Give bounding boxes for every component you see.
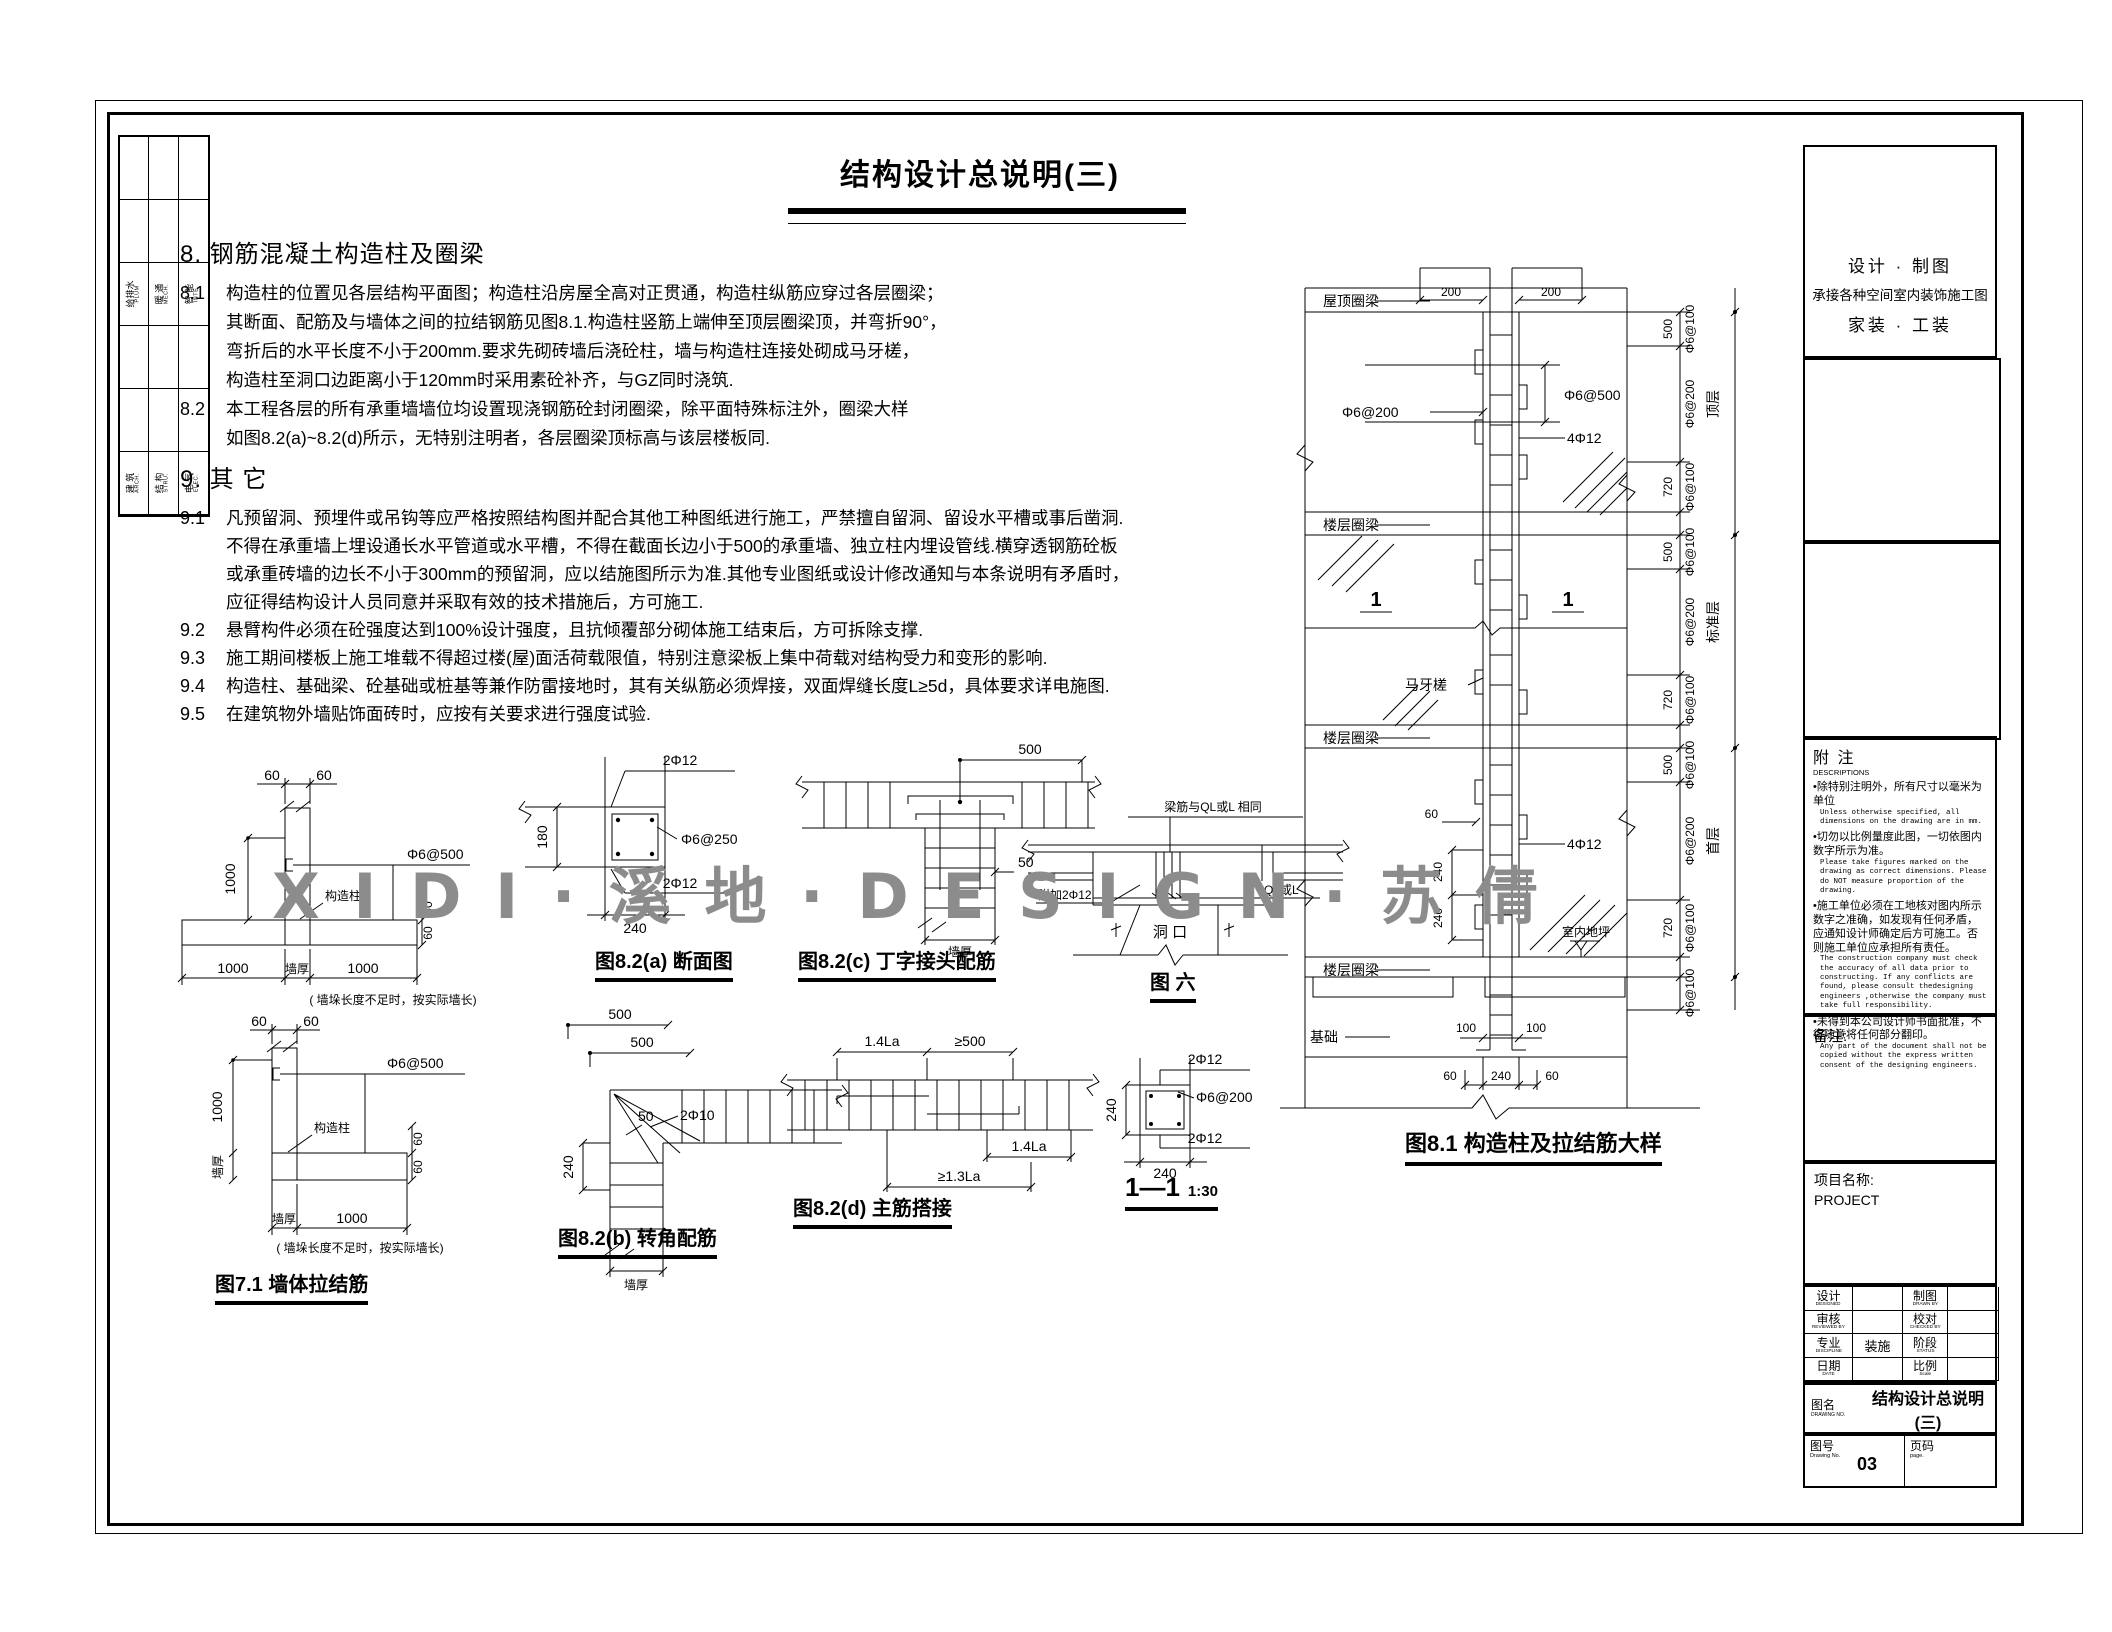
chain-dim: 720 <box>1661 918 1675 938</box>
watermark: X I D I · 溪 地 · D E S I G N · 苏 倩 <box>272 846 1544 936</box>
dim-60: 60 <box>411 1160 425 1174</box>
remark-block: 备注: <box>1803 1015 1997 1162</box>
floor-ring-beam-label: 楼层圈梁 <box>1323 730 1379 746</box>
fig82a-caption: 图8.2(a) 断面图 <box>595 945 733 982</box>
dim-500: ≥500 <box>954 1033 985 1049</box>
fig82d-lap-splice: 1.4La ≥500 1.4La ≥1.3La <box>775 1022 1105 1207</box>
section-1-1-caption: 1—11:30 <box>1125 1172 1218 1211</box>
drawing-number-cell: 图号Drawing No. 03 <box>1805 1436 1905 1486</box>
page-cell: 页码page. <box>1905 1436 1995 1486</box>
stirrup-label: Φ6@250 <box>681 831 738 847</box>
toothing-label: 马牙槎 <box>1405 677 1447 693</box>
roof-ring-beam-label: 屋顶圈梁 <box>1323 293 1379 309</box>
dim-60: 60 <box>411 1132 425 1146</box>
storey-label: 首层 <box>1705 827 1721 855</box>
fig71-l-detail: 60 60 1000 墙厚 Φ6@500 构造柱 60 60 墙厚 1000 (… <box>125 1012 555 1272</box>
dim-100: 100 <box>1526 1021 1546 1035</box>
dim-60: 60 <box>251 1013 267 1029</box>
general-notes: 8. 钢筋混凝土构造柱及圈梁 8.1 构造柱的位置见各层结构平面图；构造柱沿房屋… <box>180 228 1350 728</box>
strip-cell <box>120 389 149 452</box>
dim-lap: 1.4La <box>1011 1138 1046 1154</box>
tie-label: Φ6@500 <box>1564 387 1621 403</box>
drawing-name-row: 图名DRAWING NO. 结构设计总说明(三) <box>1803 1383 1997 1434</box>
fig71-caption: 图7.1 墙体拉结筋 <box>215 1268 368 1305</box>
label-reviewed-by: 审核REVIEWED BY <box>1805 1311 1853 1335</box>
chain-tie: Φ6@100 <box>1683 675 1697 724</box>
strip-cell-structure: 结 构STRU. <box>149 452 178 515</box>
fig81-column-elevation: 屋顶圈梁 楼层圈梁 楼层圈梁 楼层圈梁 基础 室内地坪 马牙槎 200 200 … <box>1280 250 1780 1140</box>
rebar-label: 2Φ10 <box>680 1107 715 1123</box>
chain-dim: 500 <box>1661 542 1675 562</box>
value-scale <box>1948 1358 1999 1382</box>
label-status: 阶段STATUS <box>1903 1334 1948 1358</box>
stirrup-label: Φ6@200 <box>1196 1089 1253 1105</box>
chain-dim: 500 <box>1661 755 1675 775</box>
dim-500: 500 <box>630 1034 654 1050</box>
chain-tie: Φ6@200 <box>1683 816 1697 865</box>
bars-label: 4Φ12 <box>1567 836 1602 852</box>
length-note: ( 墙垛长度不足时，按实际墙长) <box>276 1240 443 1255</box>
page-title: 结构设计总说明(三) <box>770 150 1190 194</box>
note-item-9-4: 9.4 构造柱、基础梁、砼基础或桩基等兼作防雷接地时，其有关纵筋必须焊接，双面焊… <box>180 672 1350 700</box>
strip-cell-mech: 暖 通MECH. <box>149 263 178 326</box>
strip-cell <box>149 326 178 389</box>
note-item-8-2: 8.2 本工程各层的所有承重墙墙位均设置现浇钢筋砼封闭圈梁，除平面特殊标注外，圈… <box>180 395 1350 453</box>
chain-tie: Φ6@100 <box>1683 304 1697 353</box>
title-underline <box>788 208 1186 224</box>
floor-ring-beam-label: 楼层圈梁 <box>1323 517 1379 533</box>
dim-1000: 1000 <box>336 1210 367 1226</box>
note-item-9-3: 9.3 施工期间楼板上施工堆载不得超过楼(屋)面活荷载限值，特别注意梁板上集中荷… <box>180 644 1350 672</box>
value-designed <box>1853 1287 1903 1311</box>
dim-200: 200 <box>1541 285 1561 299</box>
chain-dim: 720 <box>1661 477 1675 497</box>
dim-60: 60 <box>316 767 332 783</box>
strip-cell-plumbing: 给排水PLUM <box>120 263 149 326</box>
wall-thickness-label: 墙厚 <box>285 962 309 976</box>
label-scale: 比例Scale <box>1903 1358 1948 1382</box>
note-item-9-5: 9.5 在建筑物外墙贴饰面砖时，应按有关要求进行强度试验. <box>180 700 1350 728</box>
project-label: 项目名称: <box>1814 1171 1986 1191</box>
rebar-label: 2Φ12 <box>1188 1130 1223 1146</box>
interior-ground-label: 室内地坪 <box>1562 924 1610 939</box>
label-checked-by: 校对CHECKED BY <box>1903 1311 1948 1335</box>
dim-100: 100 <box>1456 1021 1476 1035</box>
dim-60: 60 <box>303 1013 319 1029</box>
label-designed: 设计DESIGNED <box>1805 1287 1853 1311</box>
dim-lap: ≥1.3La <box>938 1168 981 1184</box>
strip-cell <box>149 137 178 200</box>
dim-500: 500 <box>1018 741 1042 757</box>
section-8-heading: 8. 钢筋混凝土构造柱及圈梁 <box>180 234 1350 269</box>
chain-tie: Φ6@100 <box>1683 462 1697 511</box>
empty-block-1 <box>1803 358 2001 544</box>
note-item-9-1: 9.1 凡预留洞、预埋件或吊钩等应严格按照结构图并配合其他工种图纸进行施工，严禁… <box>180 504 1350 616</box>
tie-label: Φ6@200 <box>1342 404 1399 420</box>
value-checked-by <box>1948 1311 1999 1335</box>
floor-ring-beam-label: 楼层圈梁 <box>1323 962 1379 978</box>
strip-cell-arch: 建 筑ARCH. <box>120 452 149 515</box>
note-item-9-2: 9.2 悬臂构件必须在砼强度达到100%设计强度，且抗倾覆部分砌体施工结束后，方… <box>180 616 1350 644</box>
strip-cell <box>149 389 178 452</box>
length-note: ( 墙垛长度不足时，按实际墙长) <box>309 992 476 1007</box>
chain-dim: 720 <box>1661 690 1675 710</box>
dim-200: 200 <box>1441 285 1461 299</box>
dim-60: 60 <box>1443 1069 1457 1083</box>
foundation-label: 基础 <box>1310 1029 1338 1045</box>
column-label: 构造柱 <box>314 1120 350 1135</box>
chain-tie: Φ6@200 <box>1683 597 1697 646</box>
chain-tie: Φ6@200 <box>1683 379 1697 428</box>
beam-rebar-note: 梁筋与QL或L 相同 <box>1164 799 1262 814</box>
descriptions-block: 附 注 DESCRIPTIONS •除特别注明外，所有尺寸以毫米为单位 Unle… <box>1803 736 1997 1015</box>
dim-1000: 1000 <box>217 960 248 976</box>
dim-1000: 1000 <box>209 1091 225 1122</box>
drawing-name-value: 结构设计总说明(三) <box>1861 1385 1995 1433</box>
signature-table: 设计DESIGNED 制图DRAWN BY 审核REVIEWED BY 校对CH… <box>1803 1285 1997 1383</box>
label-drawn-by: 制图DRAWN BY <box>1903 1287 1948 1311</box>
value-reviewed-by <box>1853 1311 1903 1335</box>
section-9-heading: 9. 其 它 <box>180 459 1350 494</box>
value-date <box>1853 1358 1903 1382</box>
chain-tie: Φ6@100 <box>1683 903 1697 952</box>
rebar-label: 2Φ12 <box>663 752 698 768</box>
value-discipline: 装施 <box>1853 1334 1903 1358</box>
bars-label: 4Φ12 <box>1567 430 1602 446</box>
company-block: 设计 · 制图 承接各种空间室内装饰施工图 家装 · 工装 <box>1803 145 1997 358</box>
value-status <box>1948 1334 1999 1358</box>
dim-1000: 1000 <box>222 863 238 894</box>
strip-cell <box>120 200 149 263</box>
tie-spacing-label: Φ6@500 <box>387 1055 444 1071</box>
dim-60: 60 <box>1545 1069 1559 1083</box>
chain-dim: 500 <box>1661 319 1675 339</box>
fig82b-caption: 图8.2(b) 转角配筋 <box>558 1222 717 1259</box>
strip-cell <box>120 326 149 389</box>
drawing-number-value: 03 <box>1857 1454 1877 1475</box>
note-item-8-1: 8.1 构造柱的位置见各层结构平面图；构造柱沿房屋全高对正贯通，构造柱纵筋应穿过… <box>180 279 1350 395</box>
strip-cell <box>120 137 149 200</box>
dim-50: 50 <box>638 1108 654 1124</box>
dim-240: 240 <box>1491 1069 1511 1083</box>
empty-block-2 <box>1803 540 2001 740</box>
wall-thickness-label: 墙厚 <box>272 1212 296 1226</box>
drawing-sheet: 给排水PLUM 暖 通MECH. 智 能INTE. 建 筑ARCH. 结 构ST… <box>0 0 2112 1632</box>
descriptions-heading-cn: 附 注 <box>1813 744 1987 768</box>
fig82c-caption: 图8.2(c) 丁字接头配筋 <box>798 945 996 982</box>
drawing-number-row: 图号Drawing No. 03 页码page. <box>1803 1434 1997 1488</box>
project-value: PROJECT <box>1814 1191 1986 1211</box>
dim-500: 500 <box>608 1006 632 1022</box>
strip-cell <box>149 200 178 263</box>
value-drawn-by <box>1948 1287 1999 1311</box>
dim-60: 60 <box>264 767 280 783</box>
fig82d-caption: 图8.2(d) 主筋搭接 <box>793 1192 952 1229</box>
storey-label: 标准层 <box>1705 601 1721 643</box>
wall-thickness-label: 墙厚 <box>624 1278 648 1292</box>
dim-lap: 1.4La <box>864 1033 899 1049</box>
dim-1000: 1000 <box>347 960 378 976</box>
descriptions-heading-en: DESCRIPTIONS <box>1813 768 1987 777</box>
storey-label: 顶层 <box>1705 390 1721 418</box>
chain-tie: Φ6@100 <box>1683 740 1697 789</box>
strip-cell <box>179 137 208 200</box>
wall-thickness-label: 墙厚 <box>211 1155 225 1179</box>
section-1-1-geometry <box>1122 1058 1250 1168</box>
label-discipline: 专业DISCIPLINE <box>1805 1334 1853 1358</box>
company-line2: 承接各种空间室内装饰施工图 <box>1812 284 1988 304</box>
section-mark-1: 1 <box>1370 589 1381 611</box>
dim-240: 240 <box>560 1155 576 1179</box>
dim-60: 60 <box>1425 807 1439 821</box>
fig6-caption: 图 六 <box>1150 966 1196 1003</box>
label-date: 日期DATE <box>1805 1358 1853 1382</box>
project-block: 项目名称: PROJECT <box>1803 1162 1997 1285</box>
chain-tie: Φ6@100 <box>1683 968 1697 1017</box>
fig81-caption: 图8.1 构造柱及拉结筋大样 <box>1405 1126 1662 1166</box>
dim-240: 240 <box>1103 1098 1119 1122</box>
chain-tie: Φ6@100 <box>1683 527 1697 576</box>
section-mark-1: 1 <box>1562 589 1573 611</box>
company-line3: 家装 · 工装 <box>1848 311 1952 336</box>
rebar-label: 2Φ12 <box>1188 1051 1223 1067</box>
company-line1: 设计 · 制图 <box>1848 252 1952 277</box>
